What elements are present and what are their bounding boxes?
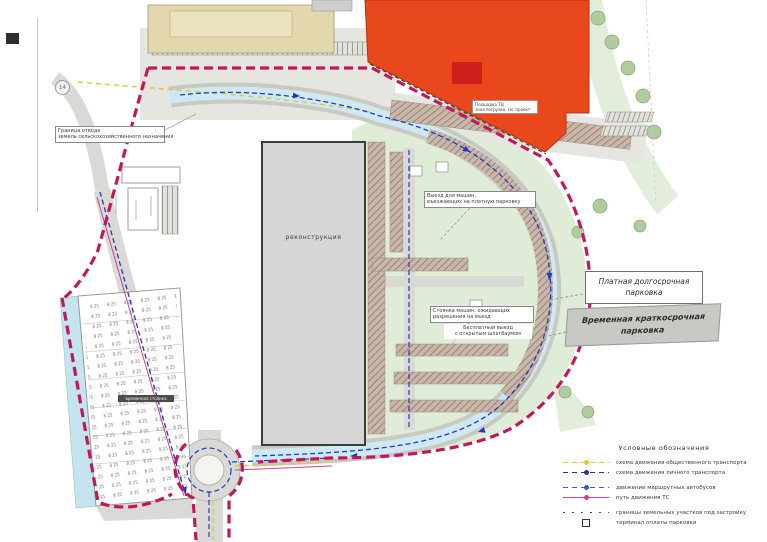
legend-label-bus-routes: движение маршрутных автобусов <box>616 485 716 491</box>
boundary-note: Граница отвода земель сельскохозяйственн… <box>55 126 165 143</box>
paid-parking-line1: Платная долгосрочная <box>588 276 700 287</box>
legend-row-private-transport: схема движения личного транспорта <box>563 469 765 476</box>
free-exit-note: Бесплатный выезд с открытым шлагбаумом <box>444 324 532 339</box>
legend-swatch-vehicle-path <box>563 494 609 501</box>
corner-badge <box>6 33 19 44</box>
legend: Условные обозначения схема движения обще… <box>563 444 765 529</box>
red-building-inner-block <box>452 62 482 84</box>
temp-parking-label: Временная краткосрочная парковка <box>565 303 722 346</box>
legend-title: Условные обозначения <box>563 444 765 452</box>
boundary-note-line2: земель сельскохозяйственного назначения <box>58 134 162 140</box>
legend-row-pay-terminal: терминал оплаты парковки <box>563 519 765 526</box>
central-building <box>262 142 365 445</box>
legend-swatch-private-transport <box>563 469 609 476</box>
parcel-number-marker: 14 <box>55 80 70 95</box>
paid-parking-label: Платная долгосрочная парковка <box>585 271 703 304</box>
legend-label-private-transport: схема движения личного транспорта <box>616 470 725 476</box>
exit-note-line2: въезжающих на платную парковку <box>427 199 533 205</box>
legend-label-pay-terminal: терминал оплаты парковки <box>616 520 696 526</box>
red-building-label-line2: зона погрузки, см. проект <box>475 107 535 112</box>
legend-row-bus-routes: движение маршрутных автобусов <box>563 484 765 491</box>
waiting-note: Стоянка машин, ожидающих разрешения на в… <box>430 306 534 323</box>
free-exit-note-line2: с открытым шлагбаумом <box>446 331 530 337</box>
legend-label-parcel-boundary: границы земельных участков под застройку <box>616 510 746 516</box>
legend-swatch-pay-terminal <box>563 519 609 526</box>
temp-stop-label: временная стоянка <box>118 395 174 402</box>
paid-parking-line2: парковка <box>588 287 700 298</box>
legend-row-vehicle-path: путь движения ТС <box>563 494 765 501</box>
red-building-label: Площадка ТЦ зона погрузки, см. проект <box>472 100 538 114</box>
legend-swatch-bus-routes <box>563 484 609 491</box>
legend-swatch-parcel-boundary <box>563 509 609 516</box>
site-plan: 8 25 <box>0 0 767 542</box>
legend-label-public-transport: схема движения общественного транспорта <box>616 460 747 466</box>
legend-label-vehicle-path: путь движения ТС <box>616 495 669 501</box>
central-building-label: реконструкция <box>262 234 365 241</box>
exit-note: Выезд для машин, въезжающих на платную п… <box>424 191 536 208</box>
legend-row-parcel-boundary: границы земельных участков под застройку <box>563 509 765 516</box>
legend-swatch-public-transport <box>563 459 609 466</box>
waiting-note-line2: разрешения на въезд <box>433 314 531 320</box>
legend-row-public-transport: схема движения общественного транспорта <box>563 459 765 466</box>
